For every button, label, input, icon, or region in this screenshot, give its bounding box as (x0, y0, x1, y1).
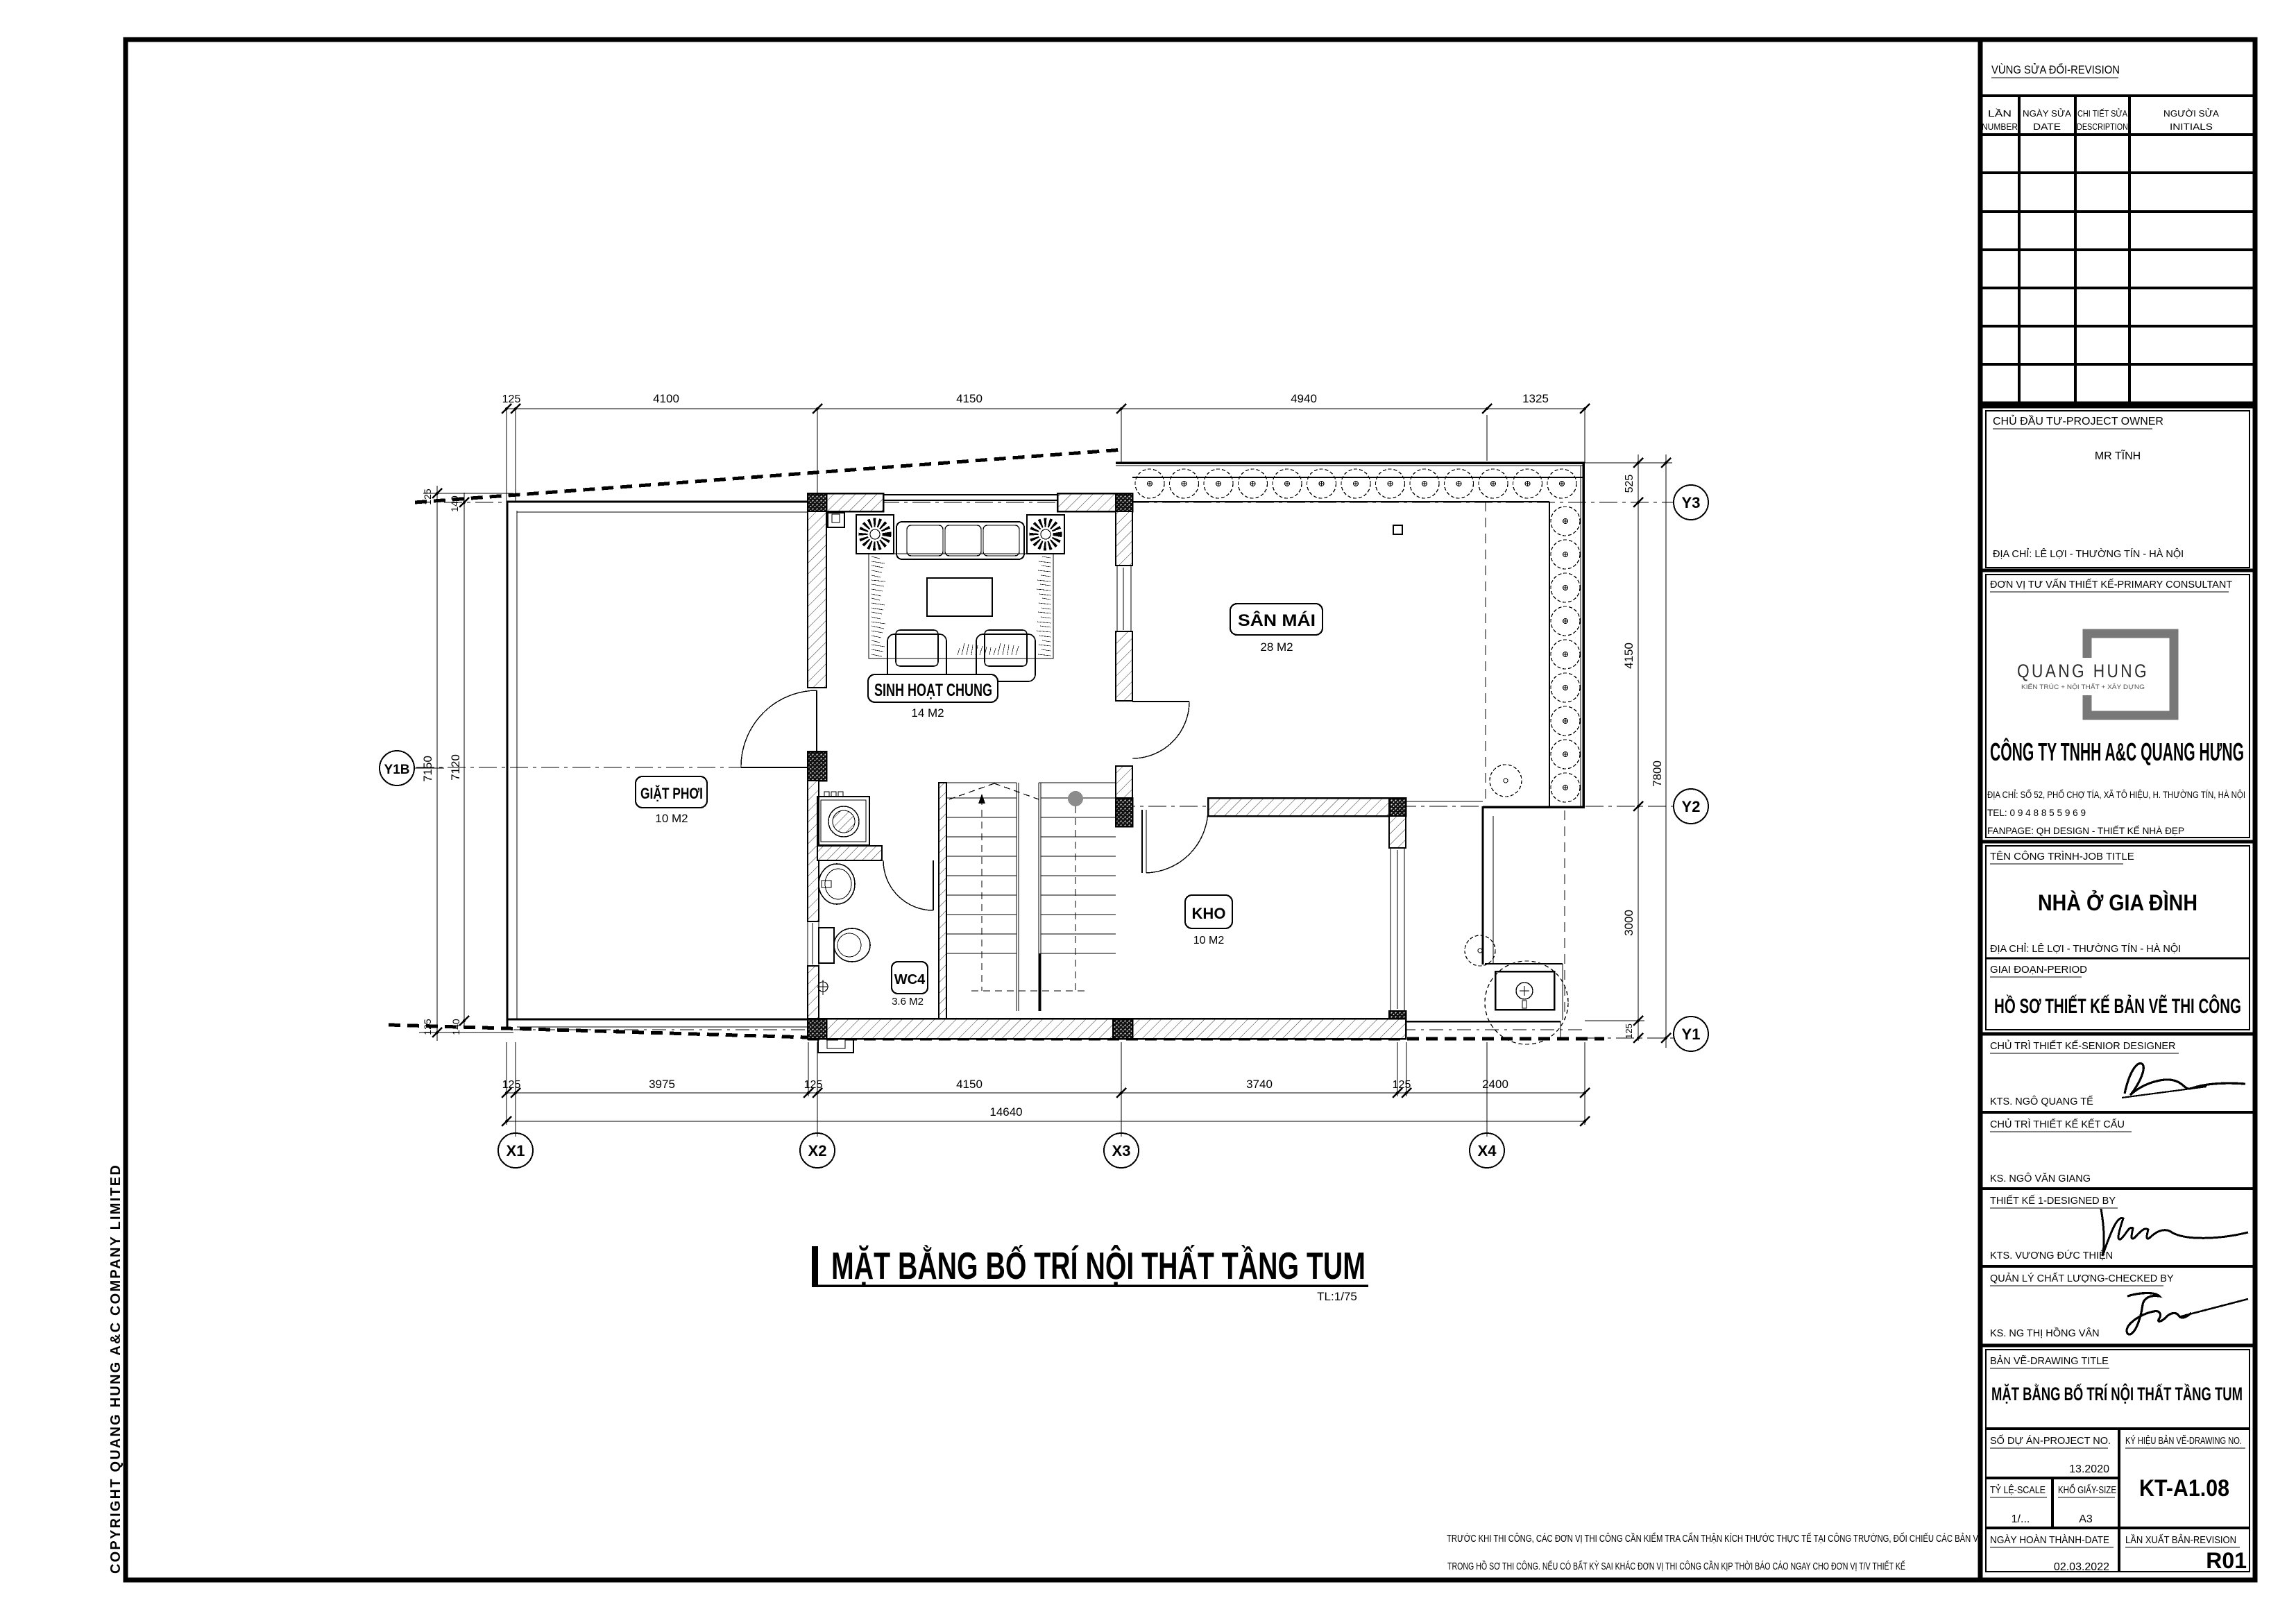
svg-text:FANPAGE: QH DESIGN - THIẾT KẾ: FANPAGE: QH DESIGN - THIẾT KẾ NHÀ ĐẸP (1987, 826, 2184, 836)
svg-text:SINH HOẠT CHUNG: SINH HOẠT CHUNG (874, 681, 992, 700)
svg-text:KS. NG THỊ HỒNG VÂN: KS. NG THỊ HỒNG VÂN (1990, 1327, 2100, 1339)
svg-text:Y2: Y2 (1682, 798, 1701, 815)
svg-text:525: 525 (1624, 475, 1635, 493)
svg-text:KTS. NGÔ QUANG TẾ: KTS. NGÔ QUANG TẾ (1990, 1096, 2093, 1107)
svg-text:28 M2: 28 M2 (1260, 640, 1293, 654)
svg-text:HỒ SƠ THIẾT KẾ BẢN VẼ THI CÔNG: HỒ SƠ THIẾT KẾ BẢN VẼ THI CÔNG (1994, 994, 2241, 1018)
svg-text:TỶ LỆ-SCALE: TỶ LỆ-SCALE (1990, 1484, 2046, 1496)
svg-text:THIẾT KẾ 1-DESIGNED BY: THIẾT KẾ 1-DESIGNED BY (1990, 1195, 2116, 1207)
svg-text:140: 140 (449, 495, 460, 512)
svg-text:COPYRIGHT QUANG HUNG A&C COMPA: COPYRIGHT QUANG HUNG A&C COMPANY LIMITED (108, 1164, 124, 1574)
svg-text:125: 125 (1624, 1023, 1634, 1039)
svg-text:10 M2: 10 M2 (655, 812, 688, 825)
svg-text:QUẢN LÝ CHẤT LƯỢNG-CHECKED BY: QUẢN LÝ CHẤT LƯỢNG-CHECKED BY (1990, 1273, 2174, 1284)
svg-text:14 M2: 14 M2 (911, 706, 944, 720)
svg-text:CHỦ ĐẦU TƯ-PROJECT OWNER: CHỦ ĐẦU TƯ-PROJECT OWNER (1993, 414, 2163, 427)
svg-text:ĐỊA CHỈ: SỐ 52, PHỐ CHỢ TÍA, X: ĐỊA CHỈ: SỐ 52, PHỐ CHỢ TÍA, XÃ TÔ HIỆU,… (1987, 790, 2245, 800)
svg-text:3975: 3975 (649, 1078, 675, 1091)
svg-text:TEL: 0 9 4 8 8 5 5 9 6 9: TEL: 0 9 4 8 8 5 5 9 6 9 (1987, 808, 2086, 818)
svg-text:DESCRIPTION: DESCRIPTION (2077, 121, 2128, 132)
svg-text:KHO: KHO (1192, 905, 1226, 922)
svg-text:CHỦ TRÌ THIẾT KẾ KẾT CẤU: CHỦ TRÌ THIẾT KẾ KẾT CẤU (1990, 1118, 2125, 1130)
svg-text:4100: 4100 (653, 392, 679, 405)
svg-text:X2: X2 (808, 1142, 827, 1159)
svg-text:14640: 14640 (989, 1105, 1022, 1119)
svg-text:TRƯỚC KHI THI CÔNG, CÁC ĐƠN VỊ: TRƯỚC KHI THI CÔNG, CÁC ĐƠN VỊ THI CÔNG … (1447, 1532, 1978, 1545)
svg-text:GIAI ĐOẠN-PERIOD: GIAI ĐOẠN-PERIOD (1990, 964, 2087, 976)
svg-text:MR TĨNH: MR TĨNH (2095, 448, 2141, 462)
svg-text:LẦN XUẤT BẢN-REVISION: LẦN XUẤT BẢN-REVISION (2125, 1534, 2236, 1546)
svg-text:WC4: WC4 (894, 972, 926, 987)
svg-text:CÔNG TY TNHH A&C QUANG HƯNG: CÔNG TY TNHH A&C QUANG HƯNG (1990, 737, 2244, 766)
svg-text:7120: 7120 (449, 754, 462, 781)
svg-text:X1: X1 (507, 1142, 525, 1159)
svg-text:GIẶT PHƠI: GIẶT PHƠI (640, 785, 703, 802)
svg-text:Y1: Y1 (1682, 1026, 1701, 1043)
svg-text:NGÀY HOÀN THÀNH-DATE: NGÀY HOÀN THÀNH-DATE (1990, 1534, 2109, 1546)
svg-text:1325: 1325 (1522, 392, 1549, 405)
svg-text:02.03.2022: 02.03.2022 (2054, 1561, 2109, 1573)
svg-text:SỐ DỰ ÁN-PROJECT NO.: SỐ DỰ ÁN-PROJECT NO. (1990, 1434, 2111, 1447)
svg-text:1/...: 1/... (2012, 1513, 2030, 1525)
svg-text:4940: 4940 (1291, 392, 1317, 405)
svg-text:TRONG HỒ SƠ THI CÔNG. NẾU CÓ B: TRONG HỒ SƠ THI CÔNG. NẾU CÓ BẤT KỲ SAI … (1447, 1560, 1905, 1572)
svg-text:KHỔ GIẤY-SIZE: KHỔ GIẤY-SIZE (2058, 1484, 2116, 1496)
svg-text:4150: 4150 (1622, 643, 1635, 669)
svg-text:125: 125 (1393, 1079, 1411, 1091)
svg-text:LẦN: LẦN (1988, 108, 2012, 119)
svg-text:Y3: Y3 (1682, 494, 1701, 511)
svg-text:A3: A3 (2079, 1513, 2093, 1525)
svg-text:MẶT BẰNG BỐ TRÍ NỘI THẤT TẦNG: MẶT BẰNG BỐ TRÍ NỘI THẤT TẦNG TUM (1991, 1382, 2243, 1404)
svg-text:QUANG HUNG: QUANG HUNG (2017, 661, 2149, 681)
svg-text:3000: 3000 (1622, 910, 1635, 936)
svg-text:7800: 7800 (1651, 760, 1664, 787)
svg-text:125: 125 (502, 393, 521, 405)
svg-text:DATE: DATE (2033, 121, 2061, 132)
svg-text:KT-A1.08: KT-A1.08 (2139, 1475, 2229, 1502)
svg-text:R01: R01 (2206, 1548, 2247, 1573)
svg-text:125: 125 (804, 1079, 823, 1091)
svg-text:13.2020: 13.2020 (2069, 1463, 2109, 1475)
svg-text:NHÀ Ở GIA ĐÌNH: NHÀ Ở GIA ĐÌNH (2038, 890, 2197, 915)
svg-text:MẶT BẰNG BỐ TRÍ NỘI THẤT TẦNG: MẶT BẰNG BỐ TRÍ NỘI THẤT TẦNG TUM (831, 1244, 1366, 1287)
svg-text:TL:1/75: TL:1/75 (1317, 1290, 1357, 1303)
svg-text:2400: 2400 (1482, 1078, 1508, 1091)
svg-text:NGÀY SỬA: NGÀY SỬA (2023, 108, 2071, 119)
svg-text:ĐỊA CHỈ: LÊ LỢI - THƯỜNG TÍN -: ĐỊA CHỈ: LÊ LỢI - THƯỜNG TÍN - HÀ NỘI (1993, 548, 2184, 560)
svg-text:KIẾN TRÚC + NỘI THẤT + XÂY DỰN: KIẾN TRÚC + NỘI THẤT + XÂY DỰNG (2021, 683, 2145, 691)
svg-text:X4: X4 (1478, 1142, 1497, 1159)
svg-text:KS. NGÔ VĂN GIANG: KS. NGÔ VĂN GIANG (1990, 1173, 2091, 1184)
svg-text:7150: 7150 (421, 756, 434, 782)
svg-text:KTS. VƯƠNG ĐỨC THIỆN: KTS. VƯƠNG ĐỨC THIỆN (1990, 1250, 2113, 1261)
svg-text:4150: 4150 (956, 392, 983, 405)
svg-text:NGƯỜI SỬA: NGƯỜI SỬA (2163, 108, 2219, 119)
svg-text:BẢN VẼ-DRAWING TITLE: BẢN VẼ-DRAWING TITLE (1990, 1355, 2109, 1367)
svg-text:SÂN MÁI: SÂN MÁI (1238, 611, 1316, 630)
svg-text:ĐƠN VỊ TƯ VẤN THIẾT KẾ-PRIMARY: ĐƠN VỊ TƯ VẤN THIẾT KẾ-PRIMARY CONSULTAN… (1990, 579, 2232, 590)
svg-text:INITIALS: INITIALS (2170, 121, 2213, 132)
svg-text:KÝ HIỆU BẢN VẼ-DRAWING NO.: KÝ HIỆU BẢN VẼ-DRAWING NO. (2125, 1435, 2242, 1447)
svg-text:3.6 M2: 3.6 M2 (892, 996, 924, 1008)
svg-text:Y1B: Y1B (384, 763, 410, 777)
svg-text:CHỦ TRÌ THIẾT KẾ-SENIOR DESIGN: CHỦ TRÌ THIẾT KẾ-SENIOR DESIGNER (1990, 1039, 2176, 1052)
svg-text:X3: X3 (1112, 1142, 1131, 1159)
svg-text:TÊN CÔNG TRÌNH-JOB TITLE: TÊN CÔNG TRÌNH-JOB TITLE (1990, 851, 2134, 863)
svg-text:CHI TIẾT SỬA: CHI TIẾT SỬA (2077, 108, 2127, 119)
svg-text:ĐỊA CHỈ: LÊ LỢI - THƯỜNG TÍN -: ĐỊA CHỈ: LÊ LỢI - THƯỜNG TÍN - HÀ NỘI (1990, 943, 2181, 955)
svg-text:NUMBER: NUMBER (1982, 121, 2018, 132)
svg-text:125: 125 (422, 488, 433, 505)
svg-text:4150: 4150 (956, 1078, 983, 1091)
svg-text:3740: 3740 (1246, 1078, 1273, 1091)
svg-text:10 M2: 10 M2 (1193, 935, 1225, 946)
svg-text:125: 125 (502, 1079, 521, 1091)
svg-text:VÙNG SỬA ĐỔI-REVISION: VÙNG SỬA ĐỔI-REVISION (1991, 63, 2120, 76)
